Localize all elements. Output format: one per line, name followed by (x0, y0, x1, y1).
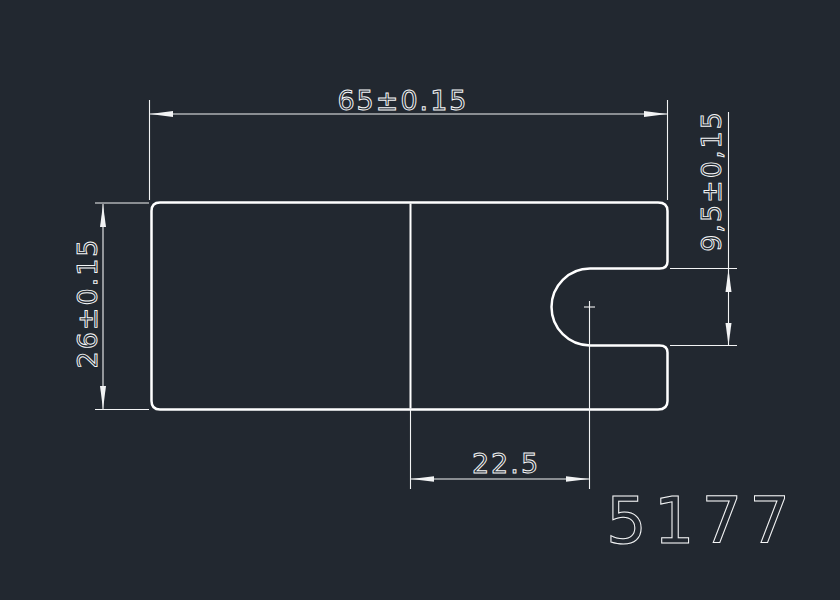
arrowhead-down (100, 386, 106, 409)
model-space[interactable]: 65±0.15 26±0.15 9,5±0,15 (0, 0, 840, 600)
arrowhead-up (726, 269, 732, 292)
arrowhead-right (566, 476, 589, 482)
dimension-slot-height: 9,5±0,15 (670, 110, 737, 345)
drawing-number: 5177 (606, 484, 797, 558)
arrowhead-left (150, 111, 173, 117)
engineering-drawing: 65±0.15 26±0.15 9,5±0,15 (0, 0, 840, 600)
dimension-slot-center-offset: 22.5 (411, 301, 596, 489)
arrowhead-right (644, 111, 667, 117)
dimension-label: 65±0.15 (337, 85, 468, 116)
dimension-overall-height: 26±0.15 (72, 203, 149, 410)
dimension-label: 22.5 (472, 448, 540, 479)
dimension-label: 9,5±0,15 (696, 110, 727, 252)
dimension-overall-width: 65±0.15 (150, 85, 668, 200)
part-outline (152, 203, 668, 410)
arrowhead-down (726, 323, 732, 346)
arrowhead-up (100, 205, 106, 228)
arrowhead-left (411, 476, 434, 482)
dimension-label: 26±0.15 (72, 237, 103, 368)
slot-center-mark (584, 301, 595, 313)
